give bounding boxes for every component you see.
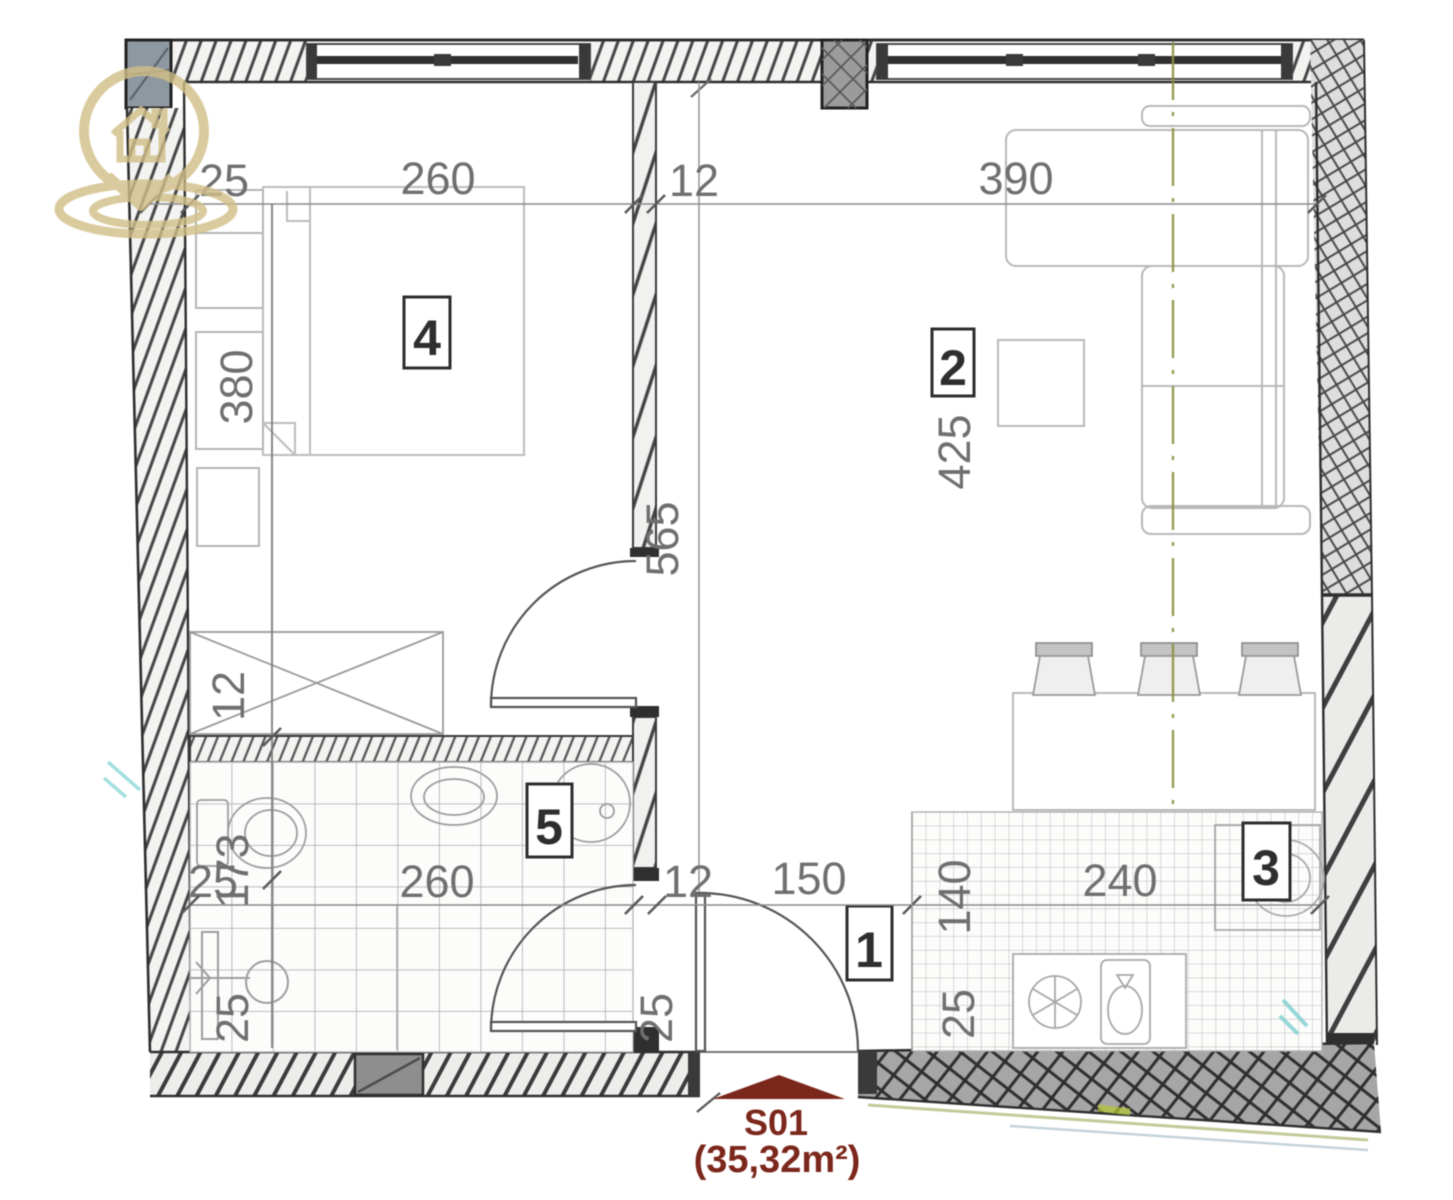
svg-text:S01: S01: [744, 1102, 808, 1143]
svg-text:25: 25: [933, 989, 984, 1039]
svg-text:240: 240: [1082, 855, 1157, 906]
svg-text:380: 380: [211, 349, 262, 424]
svg-text:1: 1: [855, 922, 883, 978]
svg-text:12: 12: [203, 671, 254, 721]
svg-text:3: 3: [1252, 840, 1280, 896]
svg-text:12: 12: [669, 155, 719, 206]
svg-text:140: 140: [929, 859, 980, 934]
svg-text:12: 12: [663, 856, 713, 907]
svg-text:260: 260: [399, 856, 474, 907]
svg-text:4: 4: [413, 310, 441, 366]
svg-text:260: 260: [400, 153, 475, 204]
svg-text:5: 5: [535, 799, 563, 855]
svg-text:(35,32m²): (35,32m²): [694, 1139, 861, 1181]
svg-text:565: 565: [637, 501, 688, 576]
svg-text:425: 425: [929, 414, 980, 489]
svg-text:390: 390: [978, 153, 1053, 204]
svg-text:25: 25: [207, 993, 258, 1043]
svg-text:150: 150: [771, 853, 846, 904]
svg-text:2: 2: [939, 340, 967, 396]
svg-text:25: 25: [631, 993, 682, 1043]
